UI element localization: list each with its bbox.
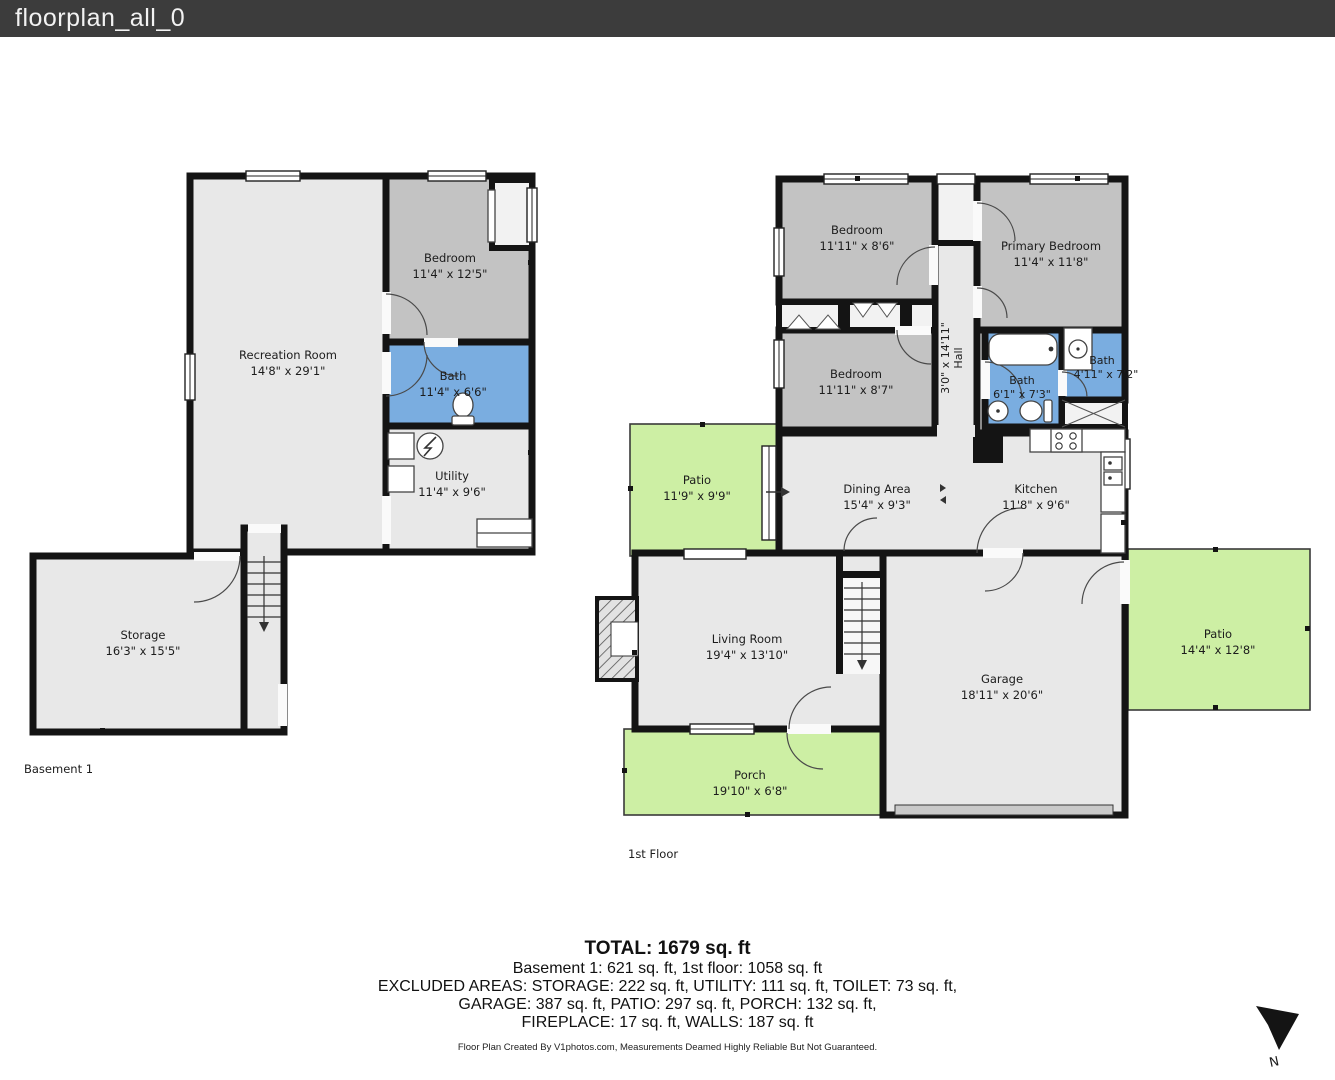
closet-door-panel bbox=[488, 190, 495, 242]
dimension-tick bbox=[1075, 176, 1080, 181]
room-dims-bedroom-mid: 11'11" x 8'7" bbox=[819, 383, 894, 397]
room-label-kitchen: Kitchen bbox=[1014, 482, 1057, 496]
utility-sink bbox=[477, 519, 532, 547]
room-dims-dining: 15'4" x 9'3" bbox=[843, 498, 911, 512]
bathtub bbox=[989, 334, 1057, 365]
room-label-garage: Garage bbox=[981, 672, 1023, 686]
small-bath-sink bbox=[1064, 328, 1092, 370]
room-dims-kitchen: 11'8" x 9'6" bbox=[1002, 498, 1070, 512]
summary-excluded-1: EXCLUDED AREAS: STORAGE: 222 sq. ft, UTI… bbox=[0, 978, 1335, 996]
room-label-dining: Dining Area bbox=[843, 482, 910, 496]
summary-total: TOTAL: 1679 sq. ft bbox=[0, 938, 1335, 960]
door-gap bbox=[424, 338, 458, 347]
footer-credit: Floor Plan Created By V1photos.com, Meas… bbox=[0, 1042, 1335, 1053]
dimension-tick bbox=[1213, 705, 1218, 710]
room-label-bath-small: Bath bbox=[1089, 354, 1115, 367]
room-dims-porch: 19'10" x 6'8" bbox=[713, 784, 788, 798]
room-dims-bath-small: 4'11" x 7'2" bbox=[1074, 368, 1139, 381]
dimension-tick bbox=[632, 650, 637, 655]
room-label-bedroom-top: Bedroom bbox=[831, 223, 883, 237]
dimension-tick bbox=[188, 470, 193, 475]
door-gap bbox=[1058, 370, 1067, 396]
dimension-tick bbox=[31, 640, 36, 645]
room-label-living: Living Room bbox=[712, 632, 783, 646]
room-dims-primary: 11'4" x 11'8" bbox=[1014, 255, 1089, 269]
utility-appliance bbox=[388, 433, 414, 459]
toilet bbox=[1020, 400, 1052, 422]
dimension-tick bbox=[100, 554, 105, 559]
dimension-tick bbox=[1213, 547, 1218, 552]
first-floor-plan: Bedroom 11'11" x 8'6" Primary Bedroom 11… bbox=[597, 174, 1310, 861]
summary-excluded-2: GARAGE: 387 sq. ft, PATIO: 297 sq. ft, P… bbox=[0, 996, 1335, 1014]
door-gap bbox=[895, 326, 931, 335]
electrical-panel-icon bbox=[417, 433, 443, 459]
room-label-utility: Utility bbox=[435, 469, 469, 483]
dimension-tick bbox=[855, 176, 860, 181]
room-dims-recreation: 14'8" x 29'1" bbox=[251, 364, 326, 378]
room-label-primary: Primary Bedroom bbox=[1001, 239, 1101, 253]
room-dims-bedroom-top: 11'11" x 8'6" bbox=[820, 239, 895, 253]
door-opening bbox=[278, 684, 287, 726]
door-gap bbox=[973, 286, 982, 318]
basement-closet bbox=[492, 180, 532, 248]
north-label: N bbox=[1268, 1054, 1281, 1071]
door-gap bbox=[194, 552, 240, 561]
room-label-bath-main: Bath bbox=[1009, 374, 1035, 387]
room-label-patio-right: Patio bbox=[1204, 627, 1232, 641]
dimension-tick bbox=[310, 174, 315, 179]
first-floor-stairs bbox=[836, 553, 883, 674]
chimney-block bbox=[973, 430, 1003, 463]
dimension-tick bbox=[1121, 520, 1126, 525]
room-dims-utility: 11'4" x 9'6" bbox=[418, 485, 486, 499]
bath-sink bbox=[988, 401, 1008, 421]
dimension-tick bbox=[528, 260, 533, 265]
room-dims-bath-main: 6'1" x 7'3" bbox=[993, 388, 1051, 401]
basement-floor-label: Basement 1 bbox=[24, 762, 93, 776]
dimension-tick bbox=[528, 450, 533, 455]
excluded-closet-xbox bbox=[1062, 400, 1125, 427]
door-gap bbox=[973, 201, 982, 241]
room-dims-storage: 16'3" x 15'5" bbox=[106, 644, 181, 658]
dimension-tick bbox=[622, 768, 627, 773]
garage-door bbox=[895, 805, 1113, 815]
room-label-patio-left: Patio bbox=[683, 473, 711, 487]
door-opening bbox=[382, 496, 391, 544]
dimension-tick bbox=[188, 310, 193, 315]
utility-appliance bbox=[388, 466, 414, 492]
stove-icon bbox=[1051, 429, 1082, 452]
room-dims-patio-right: 14'4" x 12'8" bbox=[1181, 643, 1256, 657]
dimension-tick bbox=[700, 422, 705, 427]
room-label-recreation: Recreation Room bbox=[239, 348, 337, 362]
room-label-porch: Porch bbox=[734, 768, 766, 782]
fireplace bbox=[597, 598, 638, 680]
door-gap bbox=[981, 360, 990, 399]
summary-floors: Basement 1: 621 sq. ft, 1st floor: 1058 … bbox=[0, 960, 1335, 978]
room-label-bedroom-mid: Bedroom bbox=[830, 367, 882, 381]
closet bbox=[909, 302, 935, 330]
basement-plan: Recreation Room 14'8" x 29'1" Bedroom 11… bbox=[24, 171, 537, 776]
door-gap bbox=[929, 245, 938, 285]
door-gap bbox=[787, 724, 831, 734]
room-label-basement-bedroom: Bedroom bbox=[424, 251, 476, 265]
stair-opening bbox=[248, 524, 281, 533]
door-gap bbox=[1120, 560, 1130, 604]
room-label-basement-bath: Bath bbox=[440, 369, 467, 383]
patio-slider bbox=[684, 549, 746, 559]
room-label-storage: Storage bbox=[121, 628, 166, 642]
room-dims-basement-bedroom: 11'4" x 12'5" bbox=[413, 267, 488, 281]
window bbox=[937, 174, 975, 184]
room-dims-living: 19'4" x 13'10" bbox=[706, 648, 788, 662]
room-label-hall: Hall bbox=[952, 347, 965, 368]
hall-dining-opening bbox=[937, 425, 975, 437]
dimension-tick bbox=[776, 400, 781, 405]
room-dims-patio-left: 11'9" x 9'9" bbox=[663, 489, 731, 503]
entry-closet bbox=[935, 179, 977, 243]
first-floor-label: 1st Floor bbox=[628, 847, 678, 861]
room-dims-hall: 3'0" x 14'11" bbox=[939, 322, 952, 394]
door-gap bbox=[382, 352, 391, 394]
room-dims-garage: 18'11" x 20'6" bbox=[961, 688, 1043, 702]
dimension-tick bbox=[628, 486, 633, 491]
door-gap bbox=[382, 292, 391, 334]
dimension-tick bbox=[100, 728, 105, 733]
dimension-tick bbox=[1305, 626, 1310, 631]
floorplan-drawing: Recreation Room 14'8" x 29'1" Bedroom 11… bbox=[0, 0, 1335, 1080]
door-gap bbox=[983, 548, 1023, 558]
dimension-tick bbox=[745, 812, 750, 817]
floorplan-page: floorplan_all_0 bbox=[0, 0, 1335, 1080]
summary-excluded-3: FIREPLACE: 17 sq. ft, WALLS: 187 sq. ft bbox=[0, 1014, 1335, 1032]
room-dims-basement-bath: 11'4" x 6'6" bbox=[419, 385, 487, 399]
